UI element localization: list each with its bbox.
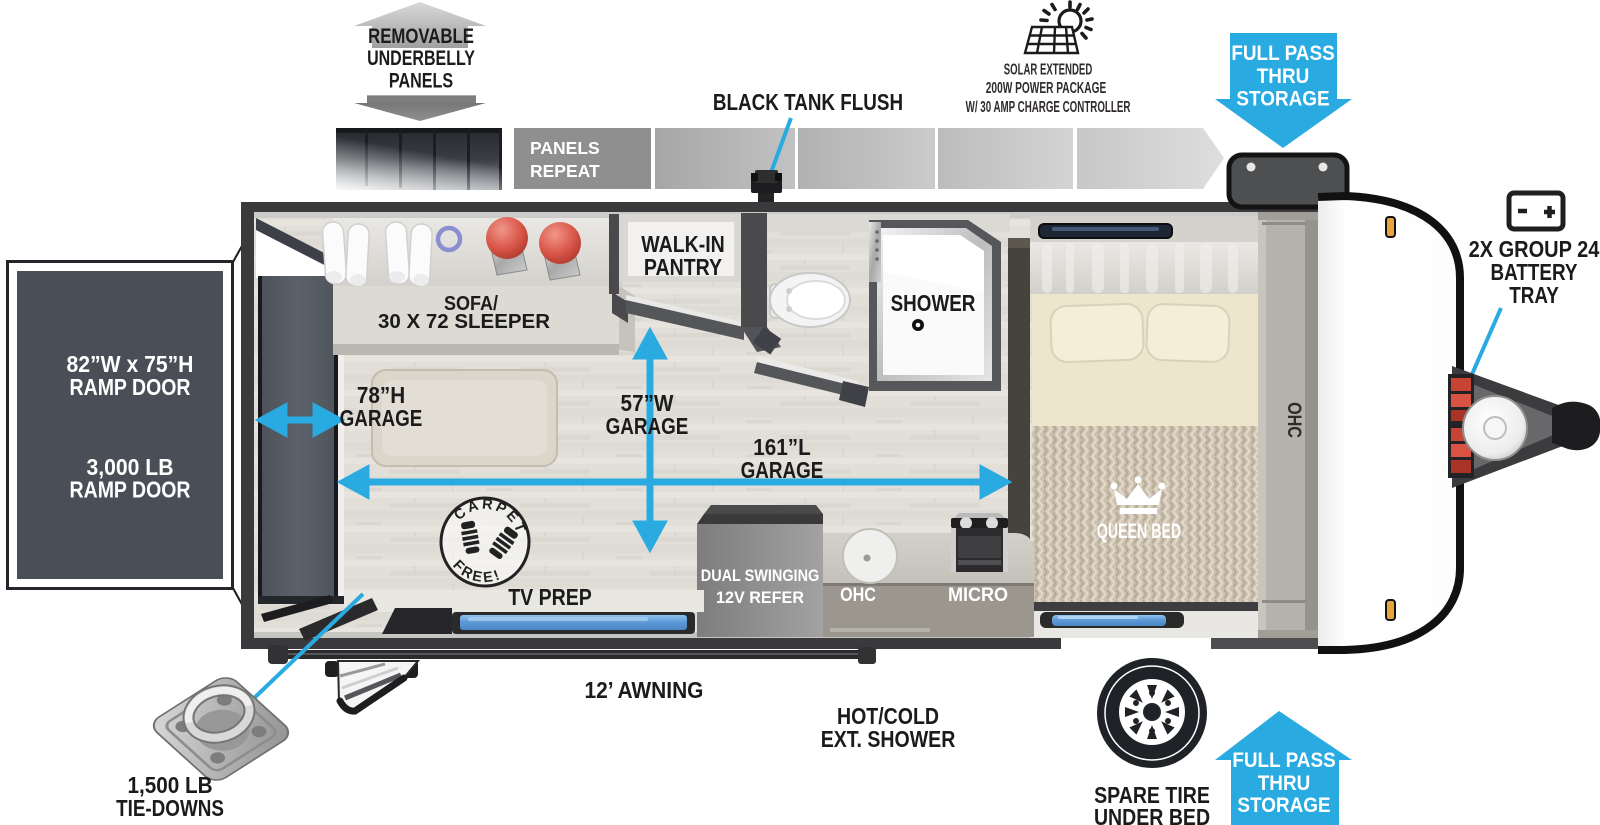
svg-text:REMOVABLE: REMOVABLE <box>368 25 474 48</box>
svg-text:W/ 30 AMP CHARGE CONTROLLER: W/ 30 AMP CHARGE CONTROLLER <box>966 98 1131 116</box>
svg-text:SOLAR EXTENDED: SOLAR EXTENDED <box>1004 60 1092 78</box>
svg-text:12’ AWNING: 12’ AWNING <box>585 677 704 703</box>
svg-text:UNDER BED: UNDER BED <box>1094 805 1210 825</box>
svg-text:200W POWER PACKAGE: 200W POWER PACKAGE <box>986 79 1107 97</box>
svg-text:GARAGE: GARAGE <box>606 414 689 439</box>
svg-text:EXT. SHOWER: EXT. SHOWER <box>821 727 956 753</box>
svg-text:PANELS: PANELS <box>530 138 600 158</box>
svg-text:THRU: THRU <box>1258 772 1311 795</box>
svg-text:GARAGE: GARAGE <box>741 458 824 483</box>
svg-text:REPEAT: REPEAT <box>530 161 600 181</box>
svg-text:57”W: 57”W <box>621 390 674 416</box>
svg-text:THRU: THRU <box>1257 65 1310 88</box>
svg-text:FULL PASS: FULL PASS <box>1232 749 1335 772</box>
svg-text:BLACK TANK FLUSH: BLACK TANK FLUSH <box>713 90 903 115</box>
svg-text:BATTERY: BATTERY <box>1491 260 1578 285</box>
svg-text:TIE-DOWNS: TIE-DOWNS <box>116 796 224 821</box>
svg-text:QUEEN BED: QUEEN BED <box>1097 519 1181 543</box>
svg-text:STORAGE: STORAGE <box>1237 794 1330 817</box>
svg-text:SHOWER: SHOWER <box>891 291 976 316</box>
svg-text:RAMP DOOR: RAMP DOOR <box>70 476 191 503</box>
svg-text:161”L: 161”L <box>753 434 811 460</box>
svg-text:TV PREP: TV PREP <box>508 585 592 611</box>
svg-text:12V REFER: 12V REFER <box>716 588 804 607</box>
svg-text:GARAGE: GARAGE <box>340 406 423 431</box>
svg-text:HOT/COLD: HOT/COLD <box>837 704 939 730</box>
svg-text:TRAY: TRAY <box>1509 283 1559 308</box>
svg-text:PANTRY: PANTRY <box>644 255 722 281</box>
svg-text:DUAL SWINGING: DUAL SWINGING <box>701 567 819 585</box>
svg-text:OHC: OHC <box>1284 402 1306 438</box>
svg-text:FULL PASS: FULL PASS <box>1231 42 1334 65</box>
svg-text:PANELS: PANELS <box>389 69 453 93</box>
svg-text:WALK-IN: WALK-IN <box>641 232 725 258</box>
svg-text:1,500 LB: 1,500 LB <box>127 772 212 798</box>
svg-text:MICRO: MICRO <box>948 584 1008 606</box>
svg-text:RAMP DOOR: RAMP DOOR <box>70 373 191 400</box>
svg-text:STORAGE: STORAGE <box>1236 87 1329 110</box>
svg-text:OHC: OHC <box>840 584 876 606</box>
svg-text:78”H: 78”H <box>357 382 405 408</box>
svg-text:UNDERBELLY: UNDERBELLY <box>367 47 475 71</box>
svg-text:30 X 72 SLEEPER: 30 X 72 SLEEPER <box>378 310 550 333</box>
svg-text:2X GROUP 24: 2X GROUP 24 <box>1469 236 1600 263</box>
